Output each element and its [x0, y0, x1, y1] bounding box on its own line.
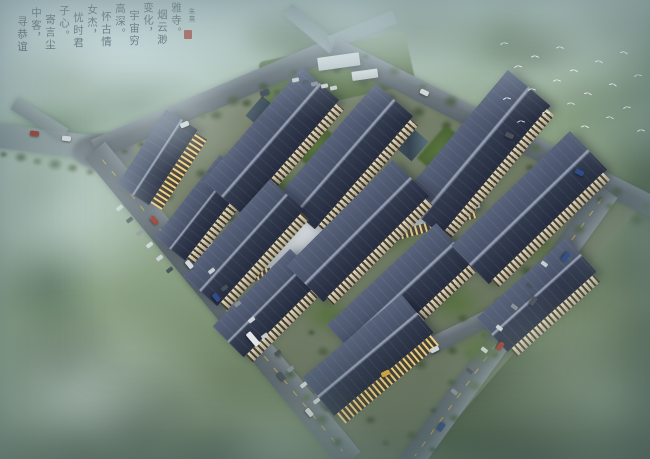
bird-icon — [595, 60, 602, 64]
tree-clump — [150, 418, 290, 459]
tree-clump — [600, 8, 650, 100]
tree-clump — [595, 398, 650, 459]
parked-car — [155, 254, 163, 261]
calligraphy-panel: 寻恭谊 中客， 寄言尘 子心。 忧时君 女杰， 怀古情 高深。 宇宙穷 变化， … — [14, 2, 214, 86]
car — [30, 130, 39, 136]
bird-icon — [637, 129, 644, 133]
tree-clump — [0, 150, 90, 250]
tree-clump — [575, 300, 650, 459]
calligraphy-column: 子心。 — [58, 5, 69, 43]
bird-icon — [556, 46, 563, 49]
calligraphy-column: 女杰， — [86, 4, 97, 42]
road-top-left — [0, 123, 103, 160]
parked-car — [135, 229, 143, 236]
tree-clump — [0, 220, 100, 340]
calligraphy-column: 宇宙穷 — [128, 10, 139, 48]
calligraphy-column: 烟云渺 — [156, 9, 167, 47]
calligraphy-column: 变化， — [142, 2, 153, 40]
bird-icon — [500, 41, 507, 45]
parked-car — [165, 266, 173, 273]
tree-clump — [0, 90, 120, 170]
bird-icon — [606, 116, 613, 120]
street-tree — [0, 151, 8, 158]
street-tree — [502, 129, 512, 137]
street-tree — [417, 83, 428, 92]
red-seal-stamp — [184, 30, 192, 39]
tree-clump — [0, 300, 130, 440]
aerial-architectural-rendering: 寻恭谊 中客， 寄言尘 子心。 忧时君 女杰， 怀古情 高深。 宇宙穷 变化， … — [0, 0, 650, 459]
bird-icon — [517, 120, 524, 123]
calligraphy-signature: 朱熹 — [186, 8, 196, 23]
street-tree — [640, 202, 650, 211]
fog-patch — [560, 60, 650, 180]
bird-icon — [531, 55, 538, 58]
car — [62, 135, 71, 141]
bird-icon — [623, 106, 630, 110]
calligraphy-column: 忧时君 — [72, 12, 83, 50]
street-tree — [85, 168, 95, 176]
bird-icon — [503, 97, 510, 101]
bird-icon — [620, 50, 627, 54]
bird-icon — [528, 88, 535, 91]
calligraphy-column: 怀古情 — [100, 11, 111, 49]
bird-icon — [567, 102, 574, 105]
bird-icon — [570, 69, 577, 73]
bird-icon — [634, 73, 641, 77]
calligraphy-column: 雅寺。 — [170, 2, 181, 40]
tree-clump — [540, 0, 650, 74]
street-tree — [443, 95, 459, 108]
fog-patch — [0, 300, 230, 459]
fog-patch — [470, 0, 650, 100]
calligraphy-column: 高深。 — [114, 3, 125, 41]
bird-icon — [553, 79, 560, 82]
parked-car — [115, 204, 123, 211]
tree-clump — [555, 40, 650, 152]
calligraphy-column: 中客， — [30, 7, 41, 45]
street-tree — [47, 158, 63, 171]
calligraphy-column: 寄言尘 — [44, 14, 55, 52]
road-top-left-branch — [10, 97, 68, 141]
street-tree — [66, 163, 79, 173]
tree-clump — [55, 360, 205, 459]
street-tree — [473, 112, 486, 122]
bird-icon — [514, 65, 521, 69]
bird-icon — [584, 92, 591, 96]
tree-clump — [430, 0, 590, 75]
bird-icon — [542, 111, 549, 114]
street-tree — [14, 152, 28, 163]
calligraphy-column: 寻恭谊 — [16, 16, 27, 54]
bird-icon — [609, 82, 616, 86]
parked-car — [145, 241, 153, 248]
tree-clump — [480, 20, 600, 75]
street-tree — [32, 157, 43, 166]
bird-icon — [581, 125, 588, 128]
parked-car — [125, 217, 133, 224]
tree-clump — [0, 400, 160, 459]
